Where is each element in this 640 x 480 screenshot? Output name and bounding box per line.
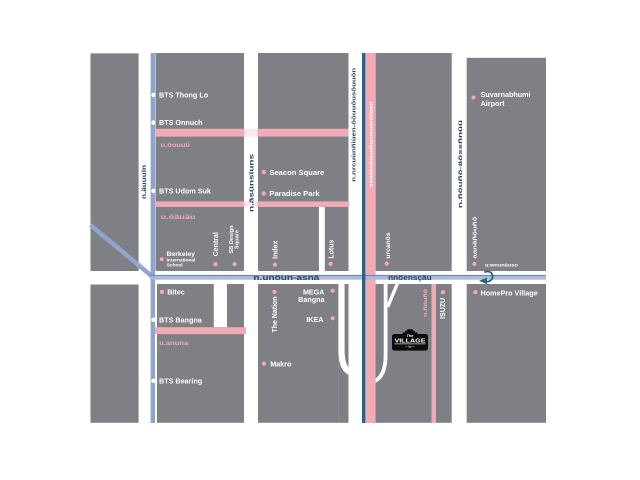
svg-text:IKEA: IKEA [306, 315, 323, 324]
svg-text:u.anuna: u.anuna [159, 340, 189, 347]
svg-text:n.äuuuîn: n.äuuuîn [141, 165, 148, 199]
svg-text:Index: Index [273, 240, 280, 258]
svg-text:BTS Bearing: BTS Bearing [159, 376, 202, 385]
svg-text:Makro: Makro [270, 359, 292, 368]
svg-text:urcanôs: urcanôs [385, 232, 392, 259]
svg-text:n.ãsûnsîuns: n.ãsûnsîuns [248, 154, 255, 212]
svg-text:aanäñöuñô: aanäñöuñô [472, 216, 478, 259]
svg-text:Suvarnabhumi: Suvarnabhumi [481, 90, 531, 99]
svg-text:— by —: — by — [405, 344, 415, 348]
svg-text:nnöensçäu: nnöensçäu [388, 275, 432, 282]
svg-text:Central: Central [213, 232, 220, 256]
svg-text:VILLAGE: VILLAGE [395, 338, 426, 344]
svg-text:Berkeley: Berkeley [167, 251, 196, 258]
svg-text:The Nation: The Nation [272, 296, 279, 332]
svg-text:n.unöun-asnä: n.unöun-asnä [253, 273, 320, 282]
svg-text:Paradise Park: Paradise Park [269, 189, 320, 198]
svg-text:u.ôouuü: u.ôouuü [161, 142, 191, 149]
svg-text:Bangna: Bangna [298, 295, 325, 304]
svg-text:BTS Onnuch: BTS Onnuch [159, 118, 203, 127]
svg-text:BTS Thong Lo: BTS Thong Lo [159, 91, 209, 100]
svg-text:International: International [167, 257, 196, 263]
svg-text:Lotus: Lotus [328, 239, 335, 258]
svg-text:u.öäuäu: u.öäuäu [161, 214, 196, 221]
svg-text:Bitec: Bitec [167, 288, 185, 297]
svg-text:BTS Bangna: BTS Bangna [159, 315, 203, 324]
svg-text:School: School [167, 263, 183, 269]
svg-text:n.ñöuñô: n.ñöuñô [423, 288, 429, 317]
svg-text:n.nrcuùnñiùen-ôöuuôusôuuôn: n.nrcuùnñiùen-ôöuuôusôuuôn [351, 67, 357, 182]
svg-text:BTS Udom Suk: BTS Udom Suk [159, 187, 211, 196]
svg-text:Airport: Airport [481, 99, 506, 108]
svg-text:n.ñöuñô-äôssñnûü: n.ñöuñô-äôssñnûü [458, 119, 464, 208]
svg-text:Seacon Square: Seacon Square [269, 168, 324, 177]
svg-text:ISUZU: ISUZU [440, 298, 447, 319]
svg-text:HomePro Village: HomePro Village [481, 289, 538, 298]
svg-text:nnöäôuôöuuôunrcuùnñiùen: nnöäôuôöuuôunrcuùnñiùen [368, 101, 373, 187]
svg-text:a:wnunäuso: a:wnunäuso [485, 263, 518, 269]
svg-text:Square: Square [235, 230, 241, 249]
